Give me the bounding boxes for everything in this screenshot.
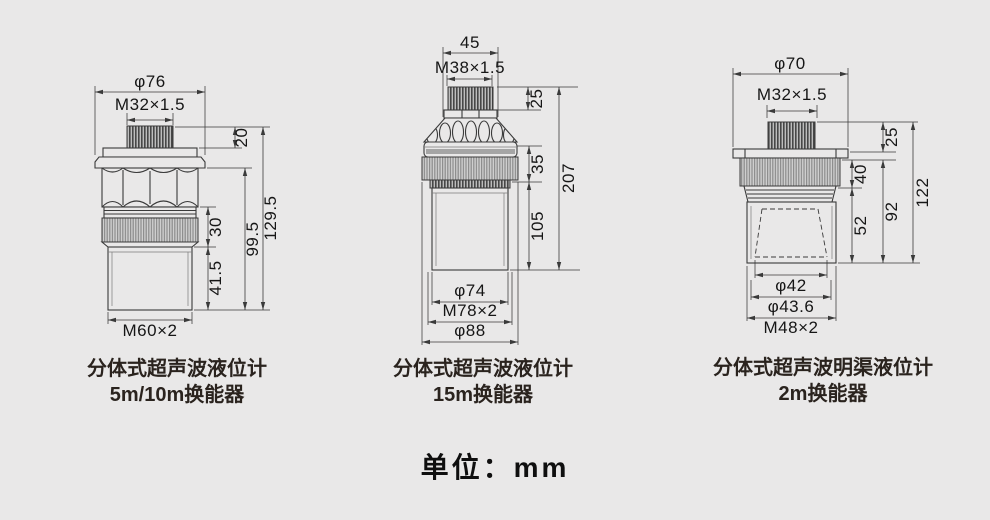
caption-line-1: 分体式超声波明渠液位计 [673, 355, 973, 381]
dim-cylinder-height: 41.5 [206, 260, 225, 295]
dim-cylinder-diameter: φ74 [454, 281, 485, 300]
dim-ring-height: 40 [851, 164, 870, 184]
caption-line-2: 2m换能器 [673, 381, 973, 407]
hex-nut [102, 168, 198, 207]
dim-ring-height: 30 [206, 217, 225, 237]
cap-step [103, 148, 197, 157]
knurled-band [430, 180, 510, 188]
knurled-ring [102, 218, 198, 242]
segment-ring [444, 110, 497, 118]
dim-body-height: 92 [882, 202, 901, 222]
dim-top-thread: M32×1.5 [115, 95, 185, 114]
dim-top-width: 45 [460, 33, 480, 52]
technical-drawing-panel: φ76 M32×1.5 20 30 41.5 99.5 129.5 M60×2 [0, 0, 990, 520]
caption-line-1: 分体式超声波液位计 [348, 356, 618, 382]
dim-ring-height: 35 [528, 154, 547, 174]
body-top-cap [424, 142, 517, 157]
knurled-ring [422, 157, 518, 180]
dim-horn-height: 52 [851, 216, 870, 236]
dim-body-height: 99.5 [243, 221, 262, 256]
cylinder-body [432, 188, 508, 270]
unit-label: 单位：mm [0, 446, 990, 486]
taper [102, 242, 198, 247]
flange [95, 157, 205, 168]
drawing-5m-10m-transducer: φ76 M32×1.5 20 30 41.5 99.5 129.5 M60×2 [95, 72, 280, 340]
caption-2m-open-channel-transducer: 分体式超声波明渠液位计 2m换能器 [673, 355, 973, 407]
cylinder-body [747, 202, 836, 263]
knurled-ring [740, 158, 840, 186]
dim-body-thread: M78×2 [443, 301, 498, 320]
caption-15m-transducer: 分体式超声波液位计 15m换能器 [348, 356, 618, 408]
dim-total-height: 122 [913, 178, 932, 208]
dim-cap-height: 25 [882, 127, 901, 147]
dim-cylinder-height: 105 [528, 211, 547, 241]
dim-horn-outer-diameter: φ43.6 [768, 297, 815, 316]
knurled-cap [768, 122, 815, 149]
dim-bottom-thread: M60×2 [123, 321, 178, 340]
drawing-15m-transducer: 45 M38×1.5 25 35 105 207 φ74 M78×2 φ88 [422, 33, 580, 345]
dim-top-thread: M38×1.5 [435, 58, 505, 77]
cylinder-body [108, 247, 192, 310]
flange-plate [733, 149, 848, 158]
caption-line-2: 5m/10m换能器 [37, 382, 317, 408]
dim-flange-diameter: φ76 [134, 72, 165, 91]
caption-5m-10m-transducer: 分体式超声波液位计 5m/10m换能器 [37, 356, 317, 408]
dim-top-thread: M32×1.5 [757, 85, 827, 104]
drawings-canvas: φ76 M32×1.5 20 30 41.5 99.5 129.5 M60×2 [0, 0, 990, 350]
dim-cap-height: 25 [527, 89, 546, 109]
knurled-cap [127, 126, 173, 148]
caption-line-2: 15m换能器 [348, 382, 618, 408]
ring-grooves [104, 207, 196, 218]
thread-rings [744, 186, 836, 202]
dim-total-height: 207 [559, 163, 578, 193]
dim-flange-diameter: φ88 [454, 321, 485, 340]
knurled-cap [448, 87, 493, 110]
caption-line-1: 分体式超声波液位计 [37, 356, 317, 382]
drawing-2m-open-channel-transducer: φ70 M32×1.5 25 40 52 92 122 φ42 φ43.6 M4… [733, 54, 932, 337]
fluted-crown [424, 118, 517, 144]
dim-cap-height: 20 [232, 128, 251, 148]
dim-bottom-thread: M48×2 [764, 318, 819, 337]
dim-horn-diameter: φ42 [775, 276, 806, 295]
dim-flange-diameter: φ70 [774, 54, 805, 73]
dim-total-height: 129.5 [261, 195, 280, 240]
